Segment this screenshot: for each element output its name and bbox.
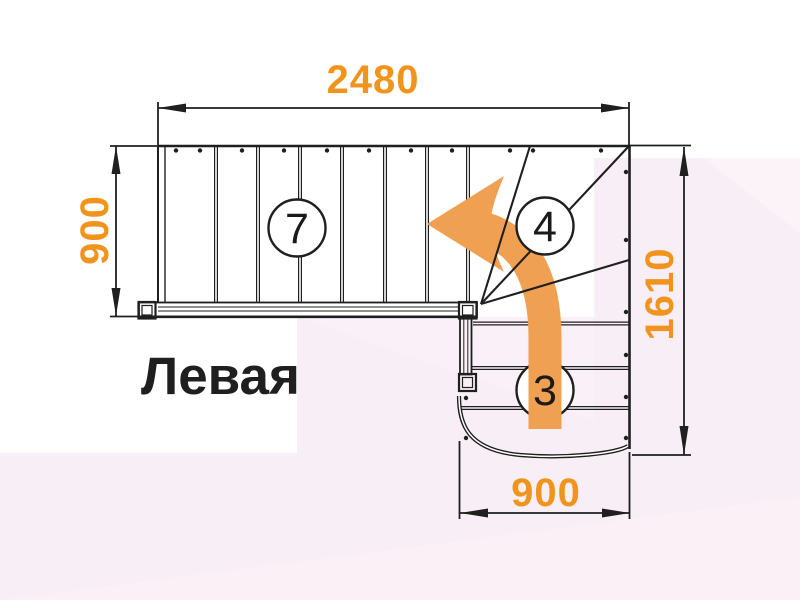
stringer-rail	[139, 303, 477, 318]
step-count-lower-flight: 3	[533, 367, 557, 415]
stair-plan-drawing: 7 4 3 2480 900 1610 900 Левая	[0, 0, 800, 600]
drawing-canvas: 7 4 3 2480 900 1610 900 Левая	[0, 0, 800, 600]
dimension-left-value: 900	[73, 195, 117, 265]
dimension-left	[110, 146, 158, 317]
step-count-winder: 4	[533, 203, 557, 251]
background-shapes	[0, 158, 800, 600]
dimension-bottom-value: 900	[511, 471, 581, 515]
dimension-top-value: 2480	[327, 58, 420, 102]
dimension-top	[158, 102, 629, 145]
step-count-upper-flight: 7	[285, 205, 309, 253]
plan-title: Левая	[141, 347, 300, 406]
dimension-right-value: 1610	[638, 248, 682, 341]
